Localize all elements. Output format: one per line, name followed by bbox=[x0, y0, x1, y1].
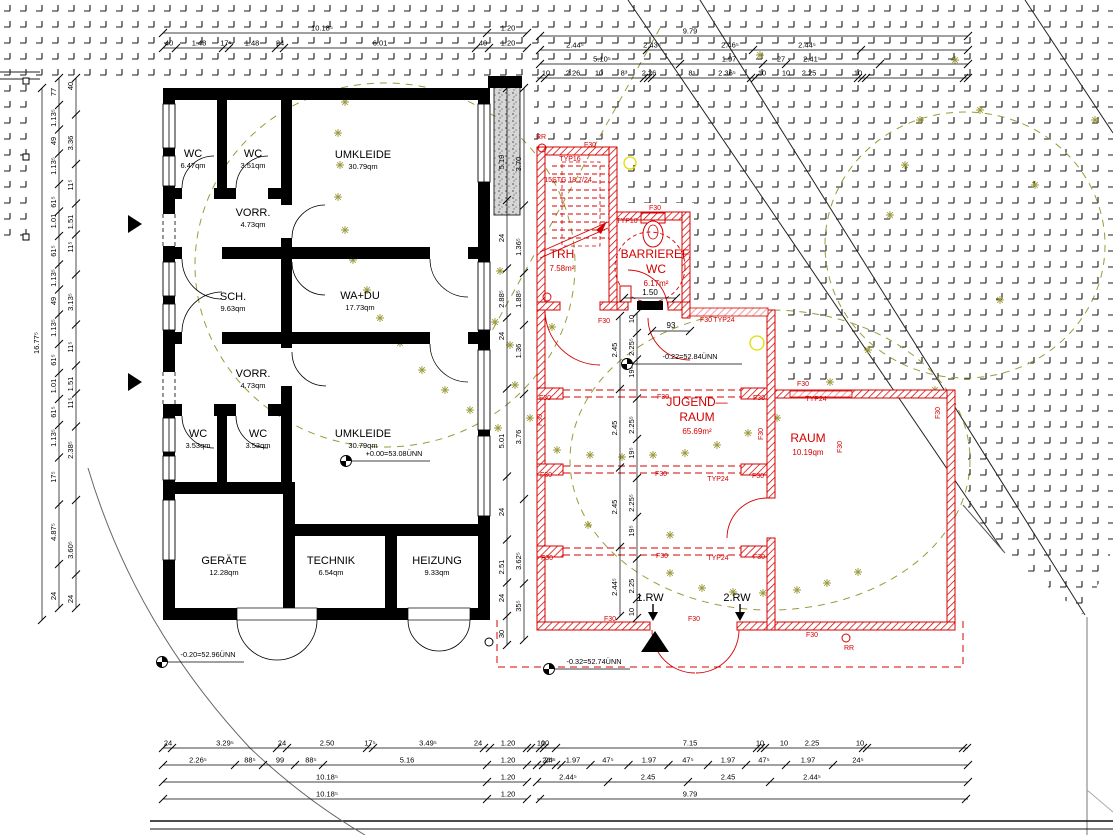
landscape-star-mark bbox=[901, 161, 909, 169]
dimension-label: 10 bbox=[627, 608, 636, 616]
dimension-label: 7.15 bbox=[683, 739, 698, 748]
landscape-star-mark bbox=[976, 106, 984, 114]
dimension-label: 1.20 bbox=[501, 39, 516, 48]
interior-wall bbox=[468, 332, 490, 344]
level-symbol bbox=[622, 359, 633, 370]
dimension-label: 1.97 bbox=[566, 756, 581, 765]
landscape-star-mark bbox=[996, 296, 1004, 304]
dimension-label: 1.13⁵ bbox=[49, 157, 58, 175]
downpipe-circle bbox=[842, 634, 850, 642]
new-wall bbox=[682, 302, 690, 318]
landscape-star-mark bbox=[494, 424, 502, 432]
entrance-gap bbox=[163, 214, 175, 246]
dimension-label: 24 bbox=[497, 594, 506, 602]
interior-wall bbox=[163, 482, 295, 494]
interior-wall bbox=[163, 332, 182, 344]
room-label: WC bbox=[184, 148, 202, 160]
rw-arrow-head bbox=[648, 612, 658, 621]
dimension-label: 1.50 bbox=[642, 288, 658, 297]
dimension-label: 61⁵ bbox=[49, 196, 58, 207]
dimension-label: 1.01 bbox=[49, 379, 58, 394]
dimension-label: 24 bbox=[278, 739, 286, 748]
room-area-label: 4.73qm bbox=[240, 220, 265, 229]
dimension-label: 2.44⁵ bbox=[566, 41, 584, 50]
construction-tag: F30 bbox=[758, 428, 765, 440]
dimension-label: 24 bbox=[49, 592, 58, 600]
room-label: WA+DU bbox=[340, 290, 380, 302]
dimension-label: 3.49⁵ bbox=[419, 739, 437, 748]
dimension-label: 11⁵ bbox=[66, 398, 75, 409]
door-swing-arc bbox=[408, 620, 439, 651]
dimension-label: 1.13⁵ bbox=[49, 319, 58, 337]
outer-wall bbox=[163, 88, 490, 100]
dimension-label: 10 bbox=[782, 69, 790, 78]
dimension-label: 1.36⁵ bbox=[514, 238, 523, 256]
dimension-label: 99 bbox=[276, 756, 284, 765]
rainwater-label: 1.RW bbox=[636, 592, 664, 604]
landscape-star-mark bbox=[649, 451, 657, 459]
dimension-label: 2.88⁵ bbox=[497, 290, 506, 308]
level-symbol bbox=[544, 664, 555, 675]
dimension-label: 1.20 bbox=[501, 773, 516, 782]
entrance-gap bbox=[163, 372, 175, 404]
landscape-star-mark bbox=[526, 414, 534, 422]
level-label: -0.20=52.96ÜNN bbox=[181, 650, 236, 659]
room-label: WC bbox=[189, 428, 207, 440]
level-label: +0.00=53.08ÜNN bbox=[366, 449, 423, 458]
construction-tag: F30 bbox=[837, 441, 844, 453]
landscape-star-mark bbox=[511, 381, 519, 389]
dimension-label: 1.97 bbox=[722, 55, 737, 64]
room-label: HEIZUNG bbox=[412, 555, 462, 567]
dimension-label: 61⁵ bbox=[49, 406, 58, 417]
room-area-label: 9.33qm bbox=[424, 568, 449, 577]
interior-wall bbox=[217, 100, 227, 188]
dimension-label: 2.26⁵ bbox=[189, 756, 207, 765]
interior-wall bbox=[217, 416, 227, 482]
dimension-label: 24⁵ bbox=[852, 756, 863, 765]
construction-tag: RR bbox=[536, 134, 546, 141]
door-gap bbox=[237, 608, 317, 620]
dimension-label: 11⁵ bbox=[66, 242, 75, 253]
construction-tag: F30 bbox=[753, 554, 765, 561]
room-area-label: 3.51qm bbox=[240, 161, 265, 170]
dimension-label: 2.46⁵ bbox=[721, 41, 739, 50]
landscape-star-mark bbox=[681, 449, 689, 457]
construction-tag: F30 bbox=[655, 471, 667, 478]
room-label: UMKLEIDE bbox=[335, 149, 391, 161]
dimension-label: 2.44⁵ bbox=[610, 578, 619, 596]
interior-wall bbox=[281, 100, 292, 205]
dimension-label: 2.44⁵ bbox=[798, 41, 816, 50]
landscape-star-mark bbox=[698, 584, 706, 592]
dimension-label: 1.36 bbox=[514, 344, 523, 359]
landscape-star-mark bbox=[496, 267, 504, 275]
dimension-label: 2.50 bbox=[320, 739, 335, 748]
dimension-label: 3.13⁵ bbox=[66, 293, 75, 311]
interior-wall bbox=[175, 404, 182, 416]
new-wall bbox=[609, 147, 617, 310]
dimension-label: 24 bbox=[497, 234, 506, 242]
dimension-label: 10 bbox=[756, 739, 764, 748]
dimension-label: 27 bbox=[777, 55, 785, 64]
new-wall bbox=[767, 310, 775, 498]
door-swing-arc bbox=[430, 344, 468, 382]
dimension-label: 10.18⁵ bbox=[311, 24, 333, 33]
dimension-label: 10 bbox=[627, 315, 636, 323]
construction-tag: F30 bbox=[657, 394, 669, 401]
room-area-label: 65.69m² bbox=[682, 427, 712, 436]
dimension-label: 2.45 bbox=[721, 773, 736, 782]
dimension-label: 1.20 bbox=[501, 790, 516, 799]
landscape-star-mark bbox=[713, 441, 721, 449]
interior-wall bbox=[214, 188, 236, 199]
dimension-label: 47⁵ bbox=[758, 756, 769, 765]
floor-plan-drawing: 10.18⁵1.20401.4817⁵1.48246.01401.209.792… bbox=[0, 0, 1113, 835]
dimension-label: 1.97 bbox=[801, 756, 816, 765]
door-swing-arc bbox=[292, 205, 325, 238]
room-label: WC bbox=[646, 262, 666, 276]
dimension-label: 10.18⁵ bbox=[316, 773, 338, 782]
dimension-label: 2.41⁵ bbox=[803, 55, 821, 64]
room-area-label: 30.79qm bbox=[348, 162, 377, 171]
dimension-label: 10 bbox=[856, 739, 864, 748]
level-quadrant bbox=[157, 662, 163, 668]
dimension-label: 2.25⁵ bbox=[627, 416, 636, 434]
interior-wall bbox=[281, 344, 292, 348]
room-label: UMKLEIDE bbox=[335, 428, 391, 440]
dimension-label: 10 bbox=[541, 739, 549, 748]
dimension-label: 35⁵ bbox=[514, 600, 523, 611]
dimension-label: 49 bbox=[49, 297, 58, 305]
landscape-star-mark bbox=[826, 378, 834, 386]
dimension-label: 1.13⁵ bbox=[49, 109, 58, 127]
construction-tag: F30 bbox=[537, 414, 544, 426]
dimension-label: 10 bbox=[854, 69, 862, 78]
dimension-label: 2.36⁵ bbox=[718, 69, 736, 78]
dimension-label: 30 bbox=[497, 630, 506, 638]
new-wall bbox=[947, 390, 955, 630]
door-swing-arc bbox=[277, 620, 317, 660]
construction-tag: F30 bbox=[540, 472, 552, 479]
dimension-label: 47⁵ bbox=[602, 756, 613, 765]
room-area-label: 17.73qm bbox=[345, 303, 374, 312]
dimension-label: 1.48 bbox=[192, 39, 207, 48]
interior-wall bbox=[468, 247, 490, 259]
lintel bbox=[690, 308, 768, 316]
construction-tag: F30 bbox=[649, 205, 661, 212]
landscape-star-mark bbox=[491, 318, 499, 326]
dimension-label: 16.77⁵ bbox=[32, 332, 41, 354]
threshold-block bbox=[637, 301, 663, 310]
construction-tag: F30 bbox=[935, 407, 942, 419]
construction-tag: RR bbox=[844, 645, 854, 652]
landscape-star-mark bbox=[418, 366, 426, 374]
level-label: -0.22=52.84ÜNN bbox=[663, 352, 718, 361]
construction-tag: F30 bbox=[700, 317, 712, 324]
dimension-label: 10.18⁵ bbox=[316, 790, 338, 799]
dimension-label: 6.01 bbox=[373, 39, 388, 48]
door-swing-arc bbox=[727, 498, 767, 538]
dimension-label: 9.79 bbox=[683, 27, 698, 36]
landscape-star-mark bbox=[441, 386, 449, 394]
interior-wall bbox=[281, 259, 292, 332]
landscape-star-mark bbox=[336, 161, 344, 169]
dimension-label: 10 bbox=[542, 69, 550, 78]
level-label: -0.32=52.74ÜNN bbox=[567, 657, 622, 666]
washbasin bbox=[620, 286, 631, 302]
dimension-label: 93 bbox=[667, 321, 676, 330]
construction-tag: F30 bbox=[797, 381, 809, 388]
interior-wall bbox=[385, 536, 397, 608]
room-label: TECHNIK bbox=[307, 555, 356, 567]
dimension-label: 2.25⁵ bbox=[627, 338, 636, 356]
dimension-label: 24 bbox=[474, 739, 482, 748]
rw-arrow-head bbox=[735, 612, 745, 621]
dimension-label: 2.44⁵ bbox=[803, 773, 821, 782]
landscape-star-mark bbox=[951, 56, 959, 64]
door-swing-arc bbox=[182, 292, 222, 332]
dimension-label: 61⁵ bbox=[49, 354, 58, 365]
dimension-label: 2.51 bbox=[497, 560, 506, 575]
dimension-label: 3.76 bbox=[514, 430, 523, 445]
dimension-label: 1.20 bbox=[501, 24, 516, 33]
landscape-star-mark bbox=[793, 586, 801, 594]
door-swing-arc bbox=[182, 259, 222, 299]
landscape-star-mark bbox=[756, 51, 764, 59]
marker-layer: +0.00=53.08ÜNN-0.20=52.96ÜNN-0.32=52.74Ü… bbox=[157, 352, 743, 675]
construction-tag: F30 bbox=[539, 395, 551, 402]
construction-tag: 15STG 18.7/24 bbox=[544, 177, 592, 184]
dimension-label: 2.26 bbox=[566, 69, 581, 78]
rainwater-label: 2.RW bbox=[723, 592, 751, 604]
room-area-label: 12.28qm bbox=[209, 568, 238, 577]
room-area-label: 3.53qm bbox=[245, 441, 270, 450]
interior-wall bbox=[175, 188, 182, 199]
landscape-star-mark bbox=[864, 346, 872, 354]
construction-tag: F30 bbox=[688, 616, 700, 623]
dimension-label: 5.19 bbox=[497, 155, 506, 170]
dimension-label: 61⁵ bbox=[49, 245, 58, 256]
floor-plan-page: 10.18⁵1.20401.4817⁵1.48246.01401.209.792… bbox=[0, 0, 1113, 835]
level-quadrant bbox=[162, 657, 168, 663]
landscape-star-mark bbox=[584, 521, 592, 529]
landscape-star-mark bbox=[586, 451, 594, 459]
dimension-label: 3.60⁵ bbox=[66, 541, 75, 559]
dimension-label: 5.10⁵ bbox=[593, 55, 611, 64]
construction-tag: TYP16 bbox=[559, 156, 581, 163]
dimension-label: 1.97 bbox=[721, 756, 736, 765]
room-area-label: 10.19qm bbox=[792, 448, 823, 457]
dimension-label: 3.62⁵ bbox=[514, 552, 523, 570]
dimension-label: 2.45 bbox=[610, 500, 619, 515]
dimension-label: 1.51 bbox=[66, 377, 75, 392]
landscape-star-mark bbox=[823, 579, 831, 587]
dimension-label: 19⁵ bbox=[627, 447, 636, 458]
dimension-label: 5.16 bbox=[400, 756, 415, 765]
dimension-label: 1.97 bbox=[642, 756, 657, 765]
dimension-label: 40 bbox=[66, 82, 75, 90]
dimension-label: 77 bbox=[49, 88, 58, 96]
interior-wall bbox=[222, 247, 430, 259]
interior-wall bbox=[214, 404, 236, 416]
interior-wall bbox=[283, 524, 490, 536]
room-label: SCH. bbox=[220, 291, 246, 303]
new-wall bbox=[682, 212, 690, 310]
level-quadrant bbox=[549, 664, 555, 670]
room-area-label: 7.58m² bbox=[550, 264, 575, 273]
landscape-star-mark bbox=[666, 531, 674, 539]
door-swing-arc bbox=[439, 620, 470, 651]
dimension-label: 10 bbox=[595, 69, 603, 78]
room-area-label: 3.53qm bbox=[185, 441, 210, 450]
dimension-label: 47⁵ bbox=[682, 756, 693, 765]
dimension-label: 3.36 bbox=[66, 136, 75, 151]
landscape-star-mark bbox=[744, 429, 752, 437]
dimension-label: 24 bbox=[66, 595, 75, 603]
room-label: GERÄTE bbox=[201, 555, 246, 567]
interior-wall bbox=[268, 404, 287, 416]
dimension-label: 2.26 bbox=[642, 69, 657, 78]
room-label: JUGEND— bbox=[666, 395, 727, 409]
new-wall bbox=[537, 147, 545, 310]
stair-dashed-box bbox=[562, 162, 600, 246]
level-quadrant bbox=[346, 456, 352, 462]
room-label: WC bbox=[244, 148, 262, 160]
dimension-label: 2.45 bbox=[610, 421, 619, 436]
dimension-label: 2.25⁵ bbox=[627, 494, 636, 512]
dimension-label: 24 bbox=[497, 332, 506, 340]
dimension-label: 9.79 bbox=[683, 790, 698, 799]
construction-tag: TYP24 bbox=[805, 396, 827, 403]
construction-tag: TYP24 bbox=[707, 555, 729, 562]
dimension-label: 2.44⁵ bbox=[559, 773, 577, 782]
construction-tag: F30 bbox=[656, 553, 668, 560]
dimension-label: 24⁵ bbox=[544, 756, 555, 765]
door-swing-arc bbox=[292, 262, 325, 295]
landscape-star-mark bbox=[334, 129, 342, 137]
landscape-star-mark bbox=[548, 323, 556, 331]
new-wall bbox=[617, 302, 628, 310]
door-swing-arc bbox=[430, 259, 468, 297]
door-swing-arc bbox=[545, 310, 600, 365]
interior-wall bbox=[163, 247, 182, 259]
door-swing-arc bbox=[237, 620, 277, 660]
room-area-label: 4.73qm bbox=[240, 381, 265, 390]
dimension-label: 2.38⁵ bbox=[66, 441, 75, 459]
room-label: WC bbox=[249, 428, 267, 440]
dimension-label: 19⁵ bbox=[627, 525, 636, 536]
dimension-label: 3.29⁵ bbox=[216, 739, 234, 748]
room-area-label: 6.17m² bbox=[644, 279, 669, 288]
landscape-star-mark bbox=[854, 568, 862, 576]
dimension-label: 17⁵ bbox=[220, 39, 231, 48]
interior-wall bbox=[222, 332, 430, 344]
construction-tag: F30 bbox=[598, 318, 610, 325]
stair-arrow bbox=[596, 221, 607, 234]
dimension-label: 40 bbox=[479, 39, 487, 48]
dimension-label: 24 bbox=[497, 508, 506, 516]
dimension-label: 17⁵ bbox=[49, 471, 58, 482]
new-wall bbox=[537, 147, 617, 155]
landscape-star-mark bbox=[916, 116, 924, 124]
construction-tag: TYP10 bbox=[616, 218, 638, 225]
downpipe-circle bbox=[485, 638, 493, 646]
level-quadrant bbox=[627, 359, 633, 365]
door-swing-arc bbox=[292, 352, 326, 386]
dimension-label: 88⁵ bbox=[244, 756, 255, 765]
new-wall bbox=[537, 622, 650, 630]
dimension-label: 1.48 bbox=[245, 39, 260, 48]
dimension-label: 1.13⁵ bbox=[49, 429, 58, 447]
survey-point-yellow bbox=[750, 336, 764, 350]
entrance-arrow bbox=[128, 373, 142, 391]
interior-wall bbox=[283, 482, 295, 608]
landscape-star-mark bbox=[666, 569, 674, 577]
new-wall bbox=[775, 622, 955, 630]
level-symbol bbox=[157, 657, 168, 668]
dimension-label: 4.87⁵ bbox=[49, 523, 58, 541]
dimension-label: 2.45 bbox=[610, 343, 619, 358]
room-area-label: 6.47qm bbox=[180, 161, 205, 170]
dimension-label: 1.20 bbox=[501, 756, 516, 765]
dimension-label: 2.25 bbox=[805, 739, 820, 748]
landscape-star-mark bbox=[886, 211, 894, 219]
construction-tag: F30 bbox=[752, 473, 764, 480]
dimension-label: 11⁵ bbox=[66, 180, 75, 191]
landscape-star-mark bbox=[466, 406, 474, 414]
dimension-label: 2.25 bbox=[802, 69, 817, 78]
room-label: VORR. bbox=[236, 207, 271, 219]
level-quadrant bbox=[544, 669, 550, 675]
room-label: VORR. bbox=[236, 368, 271, 380]
dimension-label: 2.25 bbox=[627, 579, 636, 594]
dimension-label: 40 bbox=[165, 39, 173, 48]
door-gap bbox=[408, 608, 470, 620]
existing-remnant-wall bbox=[488, 76, 522, 215]
dimension-label: 49 bbox=[49, 137, 58, 145]
room-area-label: 9.63qm bbox=[220, 304, 245, 313]
entrance-arrow bbox=[128, 215, 142, 233]
dimension-label: 3.70 bbox=[514, 157, 523, 172]
landscape-star-mark bbox=[376, 314, 384, 322]
landscape-star-mark bbox=[553, 446, 561, 454]
dimension-label: 1.51 bbox=[66, 215, 75, 230]
dimension-label: 10 bbox=[758, 69, 766, 78]
new-wall bbox=[600, 302, 617, 310]
construction-tag: F30 bbox=[584, 142, 596, 149]
level-quadrant bbox=[341, 461, 347, 467]
construction-tag: F30 bbox=[604, 616, 616, 623]
room-label: TRH bbox=[550, 247, 575, 261]
construction-tag: TYP24 bbox=[707, 476, 729, 483]
dimension-label: 88⁵ bbox=[305, 756, 316, 765]
dimension-label: 11⁵ bbox=[66, 342, 75, 353]
dimension-label: 17⁵ bbox=[364, 739, 375, 748]
dimension-label: 8⁵ bbox=[688, 69, 695, 78]
dimension-label: 1.88⁵ bbox=[514, 290, 523, 308]
construction-tag: F30 bbox=[806, 632, 818, 639]
dimension-label: 8³ bbox=[621, 69, 628, 78]
new-wall bbox=[537, 302, 560, 310]
entrance-triangle bbox=[641, 631, 669, 652]
new-wall bbox=[767, 538, 775, 630]
landscape-star-mark bbox=[618, 453, 626, 461]
dimension-label: 1.20 bbox=[501, 739, 516, 748]
dimension-label: 2.43⁵ bbox=[643, 41, 661, 50]
dimension-label: 10 bbox=[780, 739, 788, 748]
landscape-star-mark bbox=[759, 589, 767, 597]
